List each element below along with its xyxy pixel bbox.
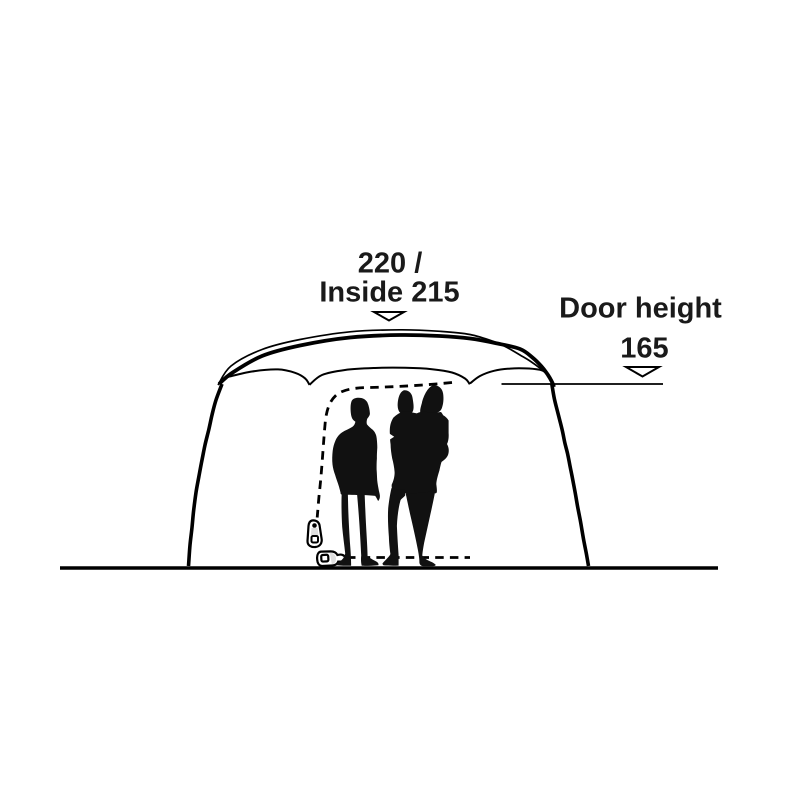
svg-text:220 /: 220 / xyxy=(358,248,423,280)
svg-text:Inside 215: Inside 215 xyxy=(319,277,459,309)
svg-text:165: 165 xyxy=(620,333,668,365)
svg-text:Door height: Door height xyxy=(559,293,722,325)
